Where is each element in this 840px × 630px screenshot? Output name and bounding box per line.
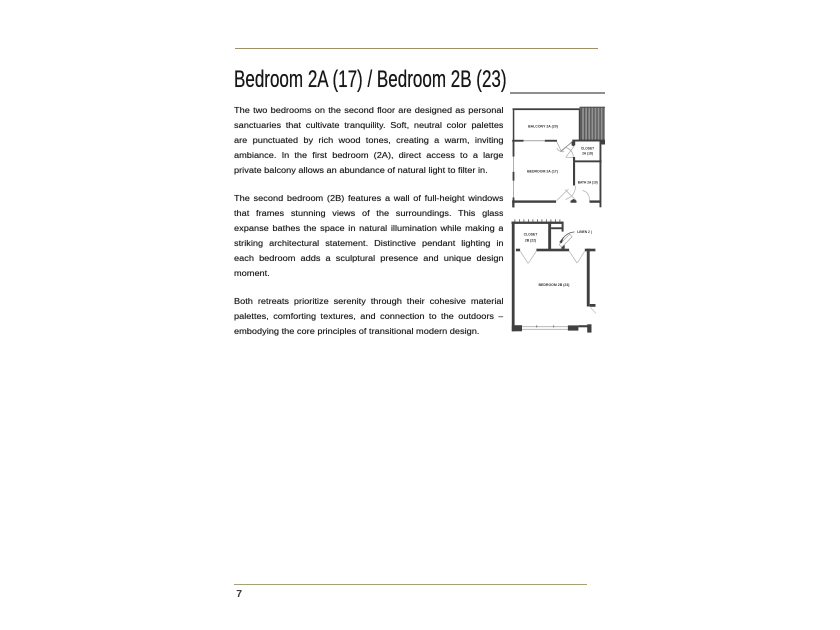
svg-text:BATH 2A (19): BATH 2A (19)	[578, 180, 598, 184]
svg-text:BEDROOM 2A (17): BEDROOM 2A (17)	[527, 170, 558, 174]
svg-text:LINEN 2 |: LINEN 2 |	[577, 230, 592, 234]
svg-text:2B (22): 2B (22)	[525, 238, 536, 242]
svg-text:2A (18): 2A (18)	[582, 151, 593, 155]
svg-text:CLOSET: CLOSET	[524, 233, 539, 237]
svg-text:BEDROOM 2B (23): BEDROOM 2B (23)	[539, 283, 570, 287]
svg-text:BALCONY 2A (20): BALCONY 2A (20)	[528, 124, 558, 128]
svg-text:CLOSET: CLOSET	[581, 146, 594, 150]
